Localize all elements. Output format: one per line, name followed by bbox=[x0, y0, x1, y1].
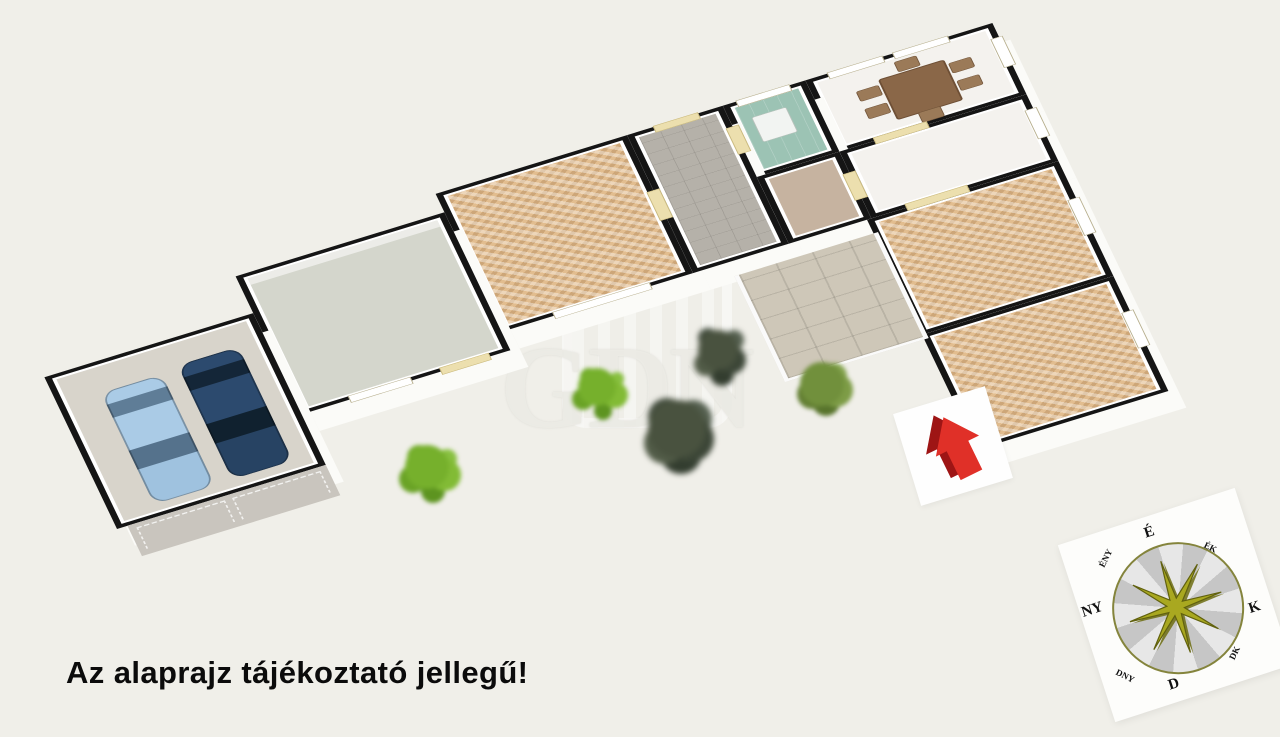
tree-conifer-icon bbox=[698, 330, 738, 370]
dining-chair bbox=[956, 74, 983, 91]
dining-chair bbox=[948, 57, 975, 74]
dining-chair bbox=[864, 102, 891, 119]
compass-label-w: NY bbox=[1079, 599, 1105, 622]
floor-plan-scene: GDN bbox=[0, 0, 1280, 737]
tree-bush-icon bbox=[578, 368, 616, 406]
tree-bush-icon bbox=[405, 445, 449, 489]
compass-rose: É ÉK K DK D DNY NY ÉNY bbox=[1058, 488, 1280, 722]
dining-chair bbox=[856, 85, 883, 102]
tree-conifer-icon bbox=[648, 400, 706, 458]
bath-fixture bbox=[751, 107, 798, 143]
compass-label-n: É bbox=[1142, 523, 1157, 542]
compass-star-icon bbox=[1095, 526, 1256, 687]
compass-label-s: D bbox=[1166, 675, 1182, 695]
terrace-bush-icon bbox=[800, 362, 844, 406]
compass-label-e: K bbox=[1246, 598, 1262, 618]
caption-text: Az alaprajz tájékoztató jellegű! bbox=[66, 655, 528, 691]
entrance-arrow-icon bbox=[906, 397, 1000, 495]
